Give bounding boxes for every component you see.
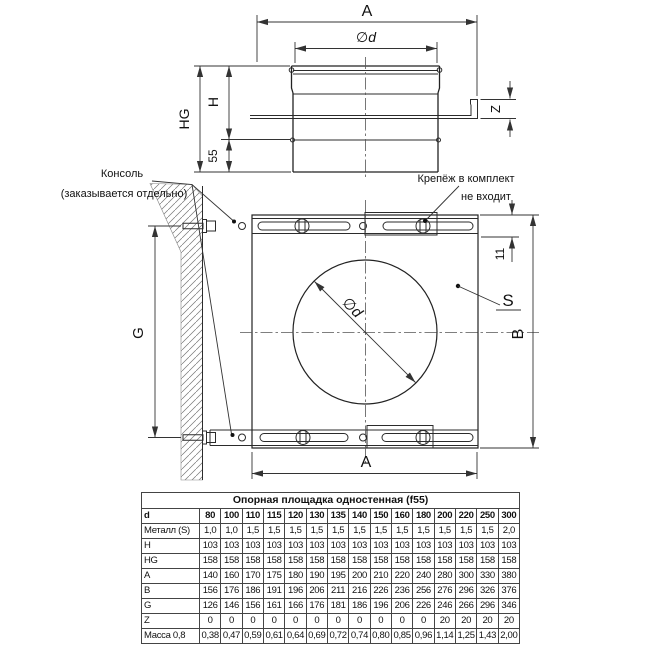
value-cell: 0,47 (221, 629, 242, 644)
dim-phid-label: ∅d (356, 29, 377, 45)
value-cell: 20 (477, 614, 498, 629)
value-cell: 1,5 (370, 524, 391, 539)
value-cell: 176 (306, 599, 327, 614)
diameter-header: 160 (391, 509, 412, 524)
value-cell: 0,61 (263, 629, 284, 644)
diameter-header: 110 (242, 509, 263, 524)
value-cell: 240 (413, 569, 434, 584)
row-label: Z (142, 614, 200, 629)
console-note-line2: (заказывается отдельно) (61, 188, 188, 200)
value-cell: 236 (391, 584, 412, 599)
value-cell: 1,25 (455, 629, 476, 644)
row-label: Металл (S) (142, 524, 200, 539)
value-cell: 380 (498, 569, 520, 584)
diameter-header: 300 (498, 509, 520, 524)
diameter-header: 135 (327, 509, 348, 524)
value-cell: 0 (263, 614, 284, 629)
side-view-drawing: A ∅d HG H 55 Z (176, 3, 516, 178)
value-cell: 0,69 (306, 629, 327, 644)
diameter-header: 180 (413, 509, 434, 524)
value-cell: 1,5 (285, 524, 306, 539)
dim-g: G (130, 226, 181, 438)
value-cell: 103 (200, 539, 221, 554)
diameter-header: 130 (306, 509, 327, 524)
value-cell: 1,5 (413, 524, 434, 539)
dim-55-label: 55 (206, 149, 220, 163)
table-title: Опорная площадка одностенная (f55) (142, 493, 520, 509)
value-cell: 1,14 (434, 629, 455, 644)
dim-b: B (480, 215, 539, 448)
value-cell: 226 (413, 599, 434, 614)
value-cell: 103 (242, 539, 263, 554)
value-cell: 300 (455, 569, 476, 584)
value-cell: 1,5 (349, 524, 370, 539)
value-cell: 166 (285, 599, 306, 614)
value-cell: 196 (370, 599, 391, 614)
table-row: Z0000000000020202020 (142, 614, 520, 629)
diameter-header: 80 (200, 509, 221, 524)
pipe-outline (289, 57, 442, 178)
spec-table-section: Опорная площадка одностенная (f55)d80100… (141, 492, 519, 644)
value-cell: 20 (455, 614, 476, 629)
value-cell: 0 (221, 614, 242, 629)
dim-11-label: 11 (493, 247, 507, 260)
value-cell: 2,00 (498, 629, 520, 644)
value-cell: 103 (263, 539, 284, 554)
value-cell: 1,5 (391, 524, 412, 539)
table-row: B156176186191196206211216226236256276296… (142, 584, 520, 599)
value-cell: 220 (391, 569, 412, 584)
value-cell: 103 (306, 539, 327, 554)
value-cell: 158 (242, 554, 263, 569)
value-cell: 346 (498, 599, 520, 614)
value-cell: 0 (285, 614, 306, 629)
wall-hatch (150, 184, 203, 481)
table-row: A140160170175180190195200210220240280300… (142, 569, 520, 584)
dim-b-label: B (510, 329, 527, 340)
table-row: Масса 0,80,380,470,590,610,640,690,720,7… (142, 629, 520, 644)
value-cell: 0 (349, 614, 370, 629)
value-cell: 158 (327, 554, 348, 569)
row-label: H (142, 539, 200, 554)
value-cell: 196 (285, 584, 306, 599)
value-cell: 2,0 (498, 524, 520, 539)
value-cell: 200 (349, 569, 370, 584)
value-cell: 280 (434, 569, 455, 584)
value-cell: 296 (455, 584, 476, 599)
fastener-note-line1: Крепёж в комплект (417, 173, 514, 185)
table-header-row: d801001101151201301351401501601802002202… (142, 509, 520, 524)
diameter-header: 120 (285, 509, 306, 524)
value-cell: 0,96 (413, 629, 434, 644)
value-cell: 0 (413, 614, 434, 629)
value-cell: 103 (327, 539, 348, 554)
row-label: A (142, 569, 200, 584)
dim-hg-label: HG (176, 109, 192, 130)
value-cell: 103 (221, 539, 242, 554)
value-cell: 0 (327, 614, 348, 629)
value-cell: 190 (306, 569, 327, 584)
value-cell: 181 (327, 599, 348, 614)
value-cell: 330 (477, 569, 498, 584)
value-cell: 158 (498, 554, 520, 569)
s-label: S (502, 291, 513, 310)
value-cell: 210 (370, 569, 391, 584)
row-label: G (142, 599, 200, 614)
value-cell: 0 (370, 614, 391, 629)
value-cell: 158 (413, 554, 434, 569)
value-cell: 195 (327, 569, 348, 584)
value-cell: 103 (349, 539, 370, 554)
row-label: B (142, 584, 200, 599)
console-note-line1: Консоль (101, 168, 144, 180)
dimensions-table: Опорная площадка одностенная (f55)d80100… (141, 492, 520, 644)
value-cell: 20 (434, 614, 455, 629)
value-cell: 1,0 (200, 524, 221, 539)
value-cell: 266 (455, 599, 476, 614)
dim-11: 11 (481, 200, 519, 262)
value-cell: 170 (242, 569, 263, 584)
diameter-header: 150 (370, 509, 391, 524)
value-cell: 103 (434, 539, 455, 554)
value-cell: 158 (349, 554, 370, 569)
value-cell: 146 (221, 599, 242, 614)
value-cell: 206 (391, 599, 412, 614)
value-cell: 246 (434, 599, 455, 614)
value-cell: 126 (200, 599, 221, 614)
value-cell: 0 (306, 614, 327, 629)
value-cell: 1,5 (327, 524, 348, 539)
value-cell: 103 (477, 539, 498, 554)
table-title-row: Опорная площадка одностенная (f55) (142, 493, 520, 509)
table-row: H103103103103103103103103103103103103103… (142, 539, 520, 554)
dim-g-label: G (130, 327, 147, 339)
value-cell: 158 (306, 554, 327, 569)
value-cell: 1,43 (477, 629, 498, 644)
value-cell: 376 (498, 584, 520, 599)
value-cell: 256 (413, 584, 434, 599)
value-cell: 0 (391, 614, 412, 629)
value-cell: 1,5 (455, 524, 476, 539)
value-cell: 1,5 (242, 524, 263, 539)
value-cell: 226 (370, 584, 391, 599)
value-cell: 158 (263, 554, 284, 569)
value-cell: 103 (391, 539, 412, 554)
value-cell: 1,5 (477, 524, 498, 539)
value-cell: 103 (455, 539, 476, 554)
value-cell: 186 (242, 584, 263, 599)
diameter-header: 200 (434, 509, 455, 524)
console-note: Консоль (заказывается отдельно) (61, 168, 236, 437)
value-cell: 0,38 (200, 629, 221, 644)
value-cell: 180 (285, 569, 306, 584)
value-cell: 0,74 (349, 629, 370, 644)
value-cell: 158 (391, 554, 412, 569)
value-cell: 161 (263, 599, 284, 614)
value-cell: 140 (200, 569, 221, 584)
value-cell: 296 (477, 599, 498, 614)
dim-z-side: Z (481, 81, 517, 137)
value-cell: 156 (242, 599, 263, 614)
value-cell: 158 (285, 554, 306, 569)
value-cell: 158 (434, 554, 455, 569)
value-cell: 1,5 (306, 524, 327, 539)
value-cell: 1,0 (221, 524, 242, 539)
value-cell: 103 (498, 539, 520, 554)
value-cell: 1,5 (434, 524, 455, 539)
dim-a-front-label: A (361, 454, 372, 471)
value-cell: 103 (370, 539, 391, 554)
value-cell: 1,5 (263, 524, 284, 539)
value-cell: 158 (200, 554, 221, 569)
diameter-header: 250 (477, 509, 498, 524)
value-cell: 0,59 (242, 629, 263, 644)
front-view-drawing: ∅d G B 11 A S (61, 168, 540, 480)
support-plate-side (250, 100, 478, 119)
value-cell: 211 (327, 584, 348, 599)
value-cell: 191 (263, 584, 284, 599)
value-cell: 158 (455, 554, 476, 569)
value-cell: 175 (263, 569, 284, 584)
dim-z-label: Z (488, 105, 503, 113)
value-cell: 0,85 (391, 629, 412, 644)
value-cell: 158 (477, 554, 498, 569)
dim-a-front: A (252, 452, 477, 479)
row-label: Масса 0,8 (142, 629, 200, 644)
table-row: Металл (S)1,01,01,51,51,51,51,51,51,51,5… (142, 524, 520, 539)
value-cell: 20 (498, 614, 520, 629)
value-cell: 0 (200, 614, 221, 629)
value-cell: 326 (477, 584, 498, 599)
value-cell: 0,64 (285, 629, 306, 644)
value-cell: 0,72 (327, 629, 348, 644)
row-label: HG (142, 554, 200, 569)
value-cell: 206 (306, 584, 327, 599)
value-cell: 216 (349, 584, 370, 599)
dim-a-label: A (362, 3, 373, 20)
diameter-header: 140 (349, 509, 370, 524)
technical-drawing-page: A ∅d HG H 55 Z (0, 0, 650, 650)
table-row: HG15815815815815815815815815815815815815… (142, 554, 520, 569)
drawing-canvas: A ∅d HG H 55 Z (0, 0, 650, 490)
value-cell: 0 (242, 614, 263, 629)
value-cell: 160 (221, 569, 242, 584)
value-cell: 176 (221, 584, 242, 599)
corner-label: d (142, 509, 200, 524)
value-cell: 0,80 (370, 629, 391, 644)
diameter-header: 115 (263, 509, 284, 524)
value-cell: 158 (221, 554, 242, 569)
value-cell: 158 (370, 554, 391, 569)
table-row: G126146156161166176181186196206226246266… (142, 599, 520, 614)
value-cell: 103 (413, 539, 434, 554)
diameter-header: 220 (455, 509, 476, 524)
value-cell: 156 (200, 584, 221, 599)
value-cell: 186 (349, 599, 370, 614)
fastener-note-line2: не входит (461, 191, 511, 203)
dim-phid-side: ∅d (295, 29, 437, 63)
value-cell: 276 (434, 584, 455, 599)
dim-a-side: A (257, 3, 477, 96)
diameter-header: 100 (221, 509, 242, 524)
value-cell: 103 (285, 539, 306, 554)
dim-h-label: H (205, 97, 221, 107)
